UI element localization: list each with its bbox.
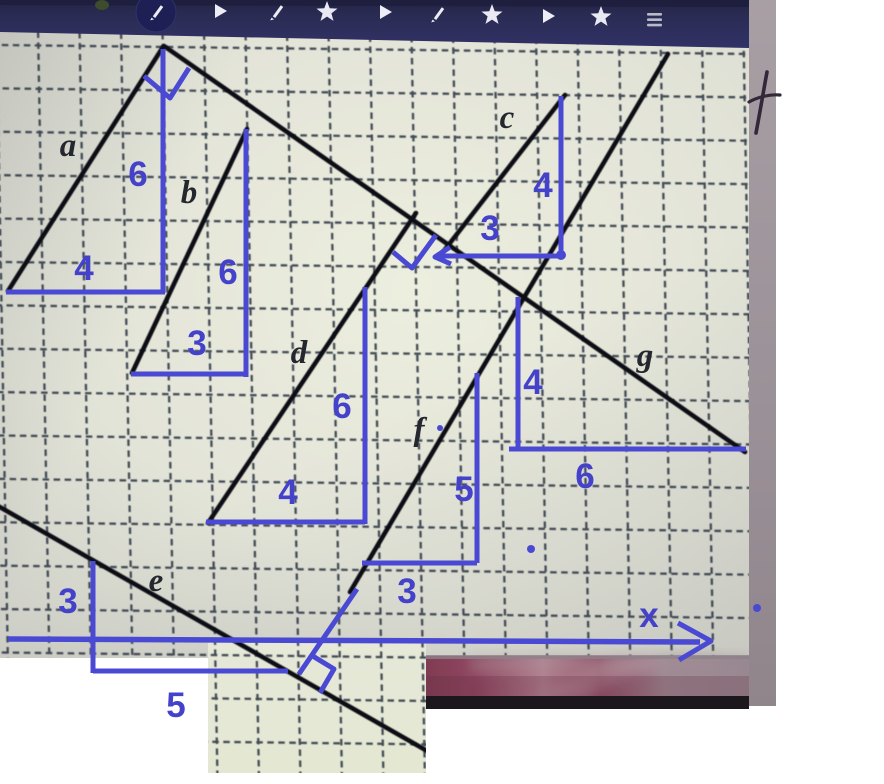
svg-text:a: a [60, 128, 77, 164]
svg-text:6: 6 [218, 253, 237, 292]
svg-text:4: 4 [523, 363, 543, 402]
svg-text:3: 3 [480, 209, 499, 248]
svg-text:5: 5 [454, 470, 473, 509]
svg-text:g: g [636, 338, 654, 374]
svg-text:d: d [291, 335, 308, 371]
svg-text:3: 3 [58, 582, 77, 621]
svg-text:3: 3 [397, 572, 416, 611]
svg-text:b: b [181, 175, 198, 211]
svg-text:6: 6 [575, 457, 594, 496]
svg-text:4: 4 [74, 249, 94, 288]
svg-text:6: 6 [128, 155, 147, 194]
svg-text:4: 4 [278, 473, 298, 512]
svg-text:c: c [500, 100, 515, 136]
svg-text:3: 3 [187, 324, 206, 363]
svg-text:4: 4 [533, 166, 553, 205]
svg-text:x: x [639, 596, 659, 635]
svg-text:6: 6 [332, 387, 351, 426]
svg-text:5: 5 [166, 686, 185, 725]
svg-text:e: e [149, 563, 164, 599]
